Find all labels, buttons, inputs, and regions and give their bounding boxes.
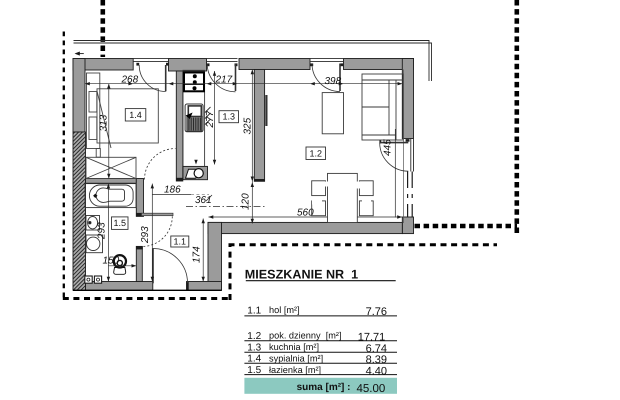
- svg-text:1.3: 1.3: [222, 112, 235, 122]
- svg-text:1.1: 1.1: [247, 306, 261, 317]
- svg-text:łazienka [m²]: łazienka [m²]: [269, 365, 321, 375]
- svg-text:1.2: 1.2: [247, 331, 261, 342]
- svg-text:suma [m²] :: suma [m²] :: [297, 382, 351, 393]
- svg-text:293: 293: [97, 222, 108, 240]
- svg-text:186: 186: [164, 184, 181, 195]
- svg-text:1.1: 1.1: [174, 237, 187, 247]
- svg-text:1.3: 1.3: [247, 342, 261, 353]
- svg-text:hol [m²]: hol [m²]: [269, 305, 300, 315]
- svg-text:1.5: 1.5: [113, 218, 126, 228]
- svg-text:277: 277: [205, 110, 216, 128]
- svg-text:6.74: 6.74: [366, 343, 387, 355]
- svg-text:1.4: 1.4: [129, 110, 142, 120]
- svg-text:120: 120: [241, 193, 252, 210]
- svg-text:361: 361: [195, 195, 212, 206]
- svg-text:174: 174: [192, 246, 203, 263]
- svg-text:8.39: 8.39: [366, 354, 387, 366]
- svg-text:4.40: 4.40: [366, 365, 387, 377]
- svg-text:sypialnia [m²]: sypialnia [m²]: [269, 353, 323, 363]
- svg-text:293: 293: [140, 226, 151, 244]
- svg-text:325: 325: [243, 117, 254, 134]
- svg-text:313: 313: [98, 114, 109, 131]
- svg-text:150: 150: [103, 256, 120, 267]
- svg-text:45.00: 45.00: [357, 383, 386, 395]
- svg-text:pok. dzienny [m²]: pok. dzienny [m²]: [269, 331, 342, 341]
- svg-text:268: 268: [121, 75, 139, 86]
- svg-text:217: 217: [215, 75, 233, 86]
- svg-text:MIESZKANIE NR 1: MIESZKANIE NR 1: [245, 268, 358, 282]
- svg-text:1.2: 1.2: [309, 148, 322, 158]
- svg-text:398: 398: [325, 76, 342, 87]
- svg-text:445: 445: [383, 139, 394, 156]
- svg-text:17.71: 17.71: [358, 332, 386, 344]
- svg-text:kuchnia [m²]: kuchnia [m²]: [269, 342, 319, 352]
